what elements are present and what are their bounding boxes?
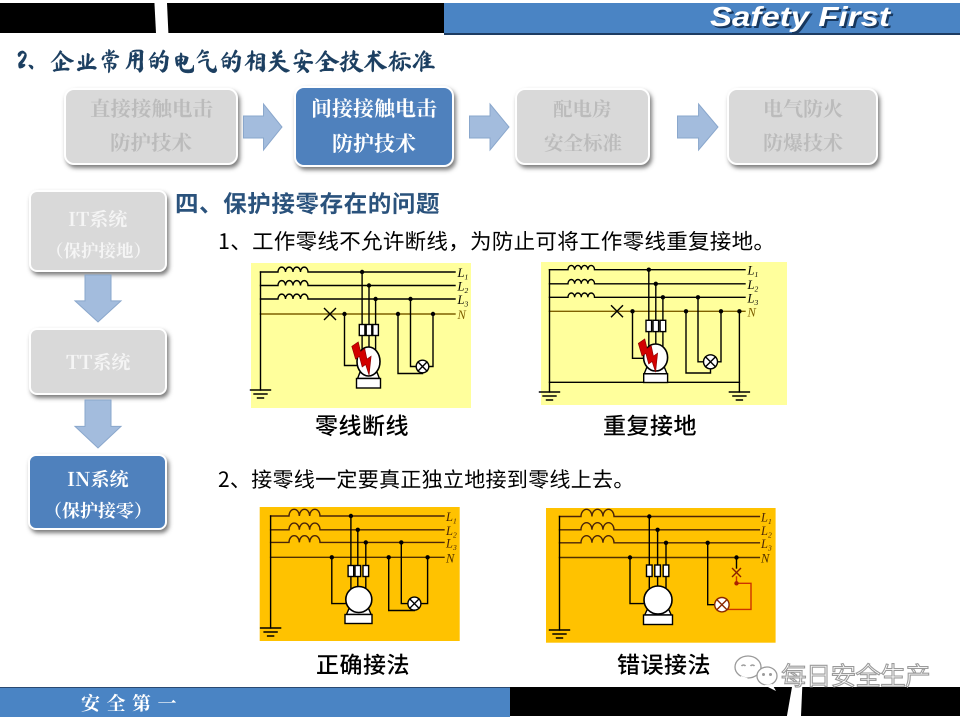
svg-text:N: N [760,552,770,566]
svg-text:N: N [747,305,757,319]
svg-text:N: N [457,308,467,322]
svg-text:N: N [445,551,455,565]
